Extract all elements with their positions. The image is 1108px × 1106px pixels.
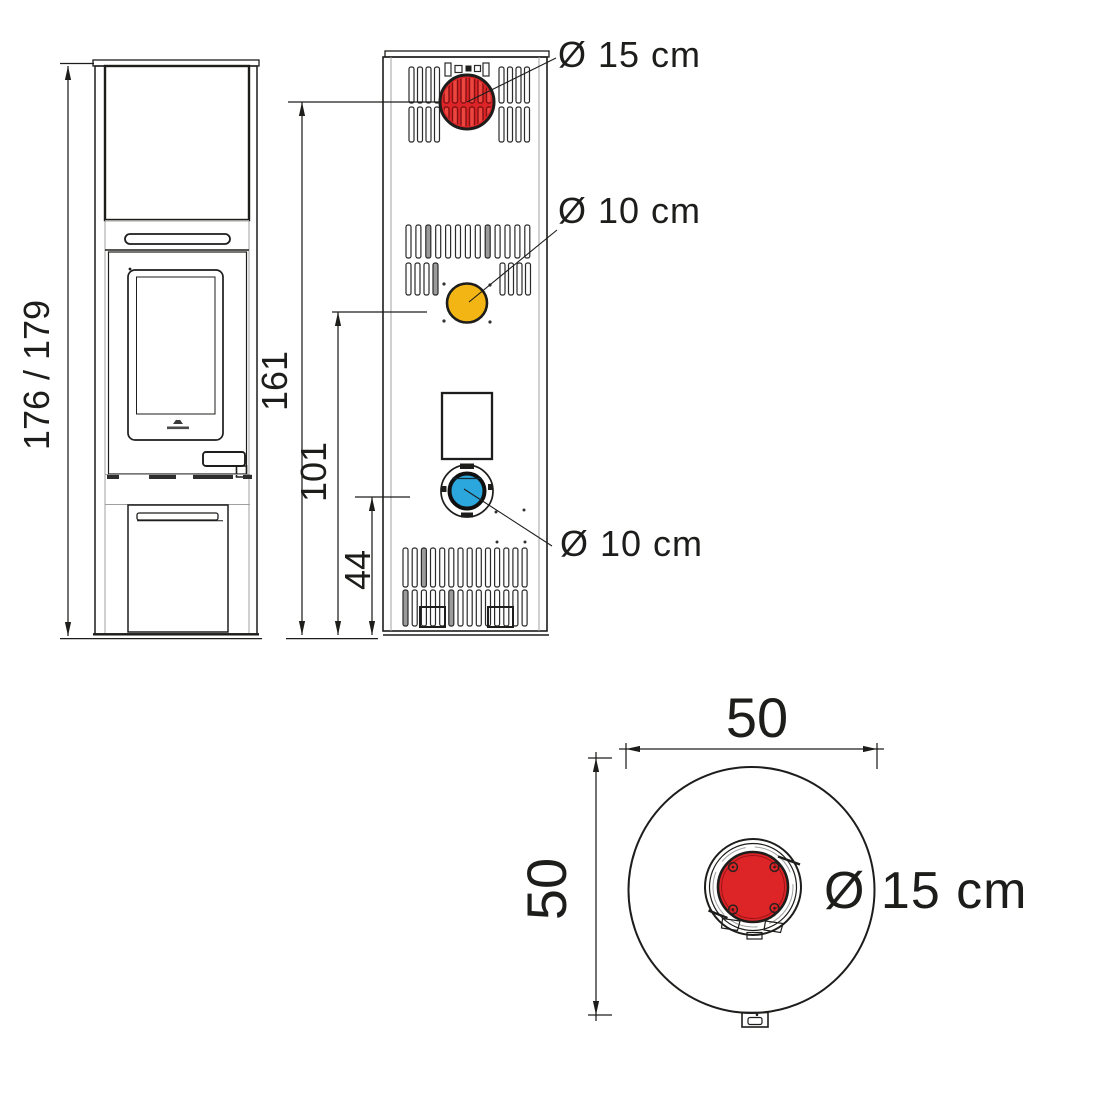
secondary-outlet-label: Ø 10 cm [558,190,701,231]
bracket-screw [756,1014,759,1017]
door-glass [137,277,216,414]
screw-hole [524,541,527,544]
secondary-outlet-circle [447,284,487,323]
brand-logo-icon [173,417,183,424]
arrowhead-down [65,622,71,636]
rear-top-cap [385,51,549,57]
dim-intake-height: 44 [337,497,410,635]
dim-top-width: 50 [619,686,884,769]
stove-body-front [95,66,257,634]
flue-collar-top [705,839,801,939]
intake-tab-top [460,464,474,470]
secondary-outlet-rear [442,282,491,323]
rear-bracket-slot [748,1018,762,1025]
rear-view [383,51,549,635]
dim-overall-height: 176 / 179 [16,64,94,637]
screw-hole [442,319,445,322]
screw-hole [496,541,499,544]
flue-outlet-rear [440,67,494,142]
storage-door-grip [137,513,218,520]
screw-hole [523,509,526,512]
rear-bottom-vents [403,548,527,627]
door-hinge-pin [129,268,132,271]
brand-logo-text [167,427,189,430]
dim-top-width-value: 50 [726,686,788,749]
door-handle [203,452,245,466]
rear-panel [383,57,547,631]
intake-tab-bottom [461,513,473,518]
upper-body-section [105,66,249,220]
dim-secondary-height-value: 101 [293,442,334,502]
screw-hole [442,282,445,285]
dim-top-depth-value: 50 [515,858,578,920]
door-sill-dashes [107,475,252,479]
top-view: 50 50 Ø 15 cm [515,686,1028,1027]
air-intake-rear [441,464,527,544]
air-intake-label: Ø 10 cm [560,523,703,564]
wood-storage-door [128,505,228,632]
dim-top-depth: 50 [515,752,612,1021]
flue-outlet-label: Ø 15 cm [558,34,701,75]
front-view [60,60,262,639]
air-control-slot [125,234,230,244]
dim-flue-height-value: 161 [254,351,295,411]
collar-clip-lower [709,911,728,919]
intake-lug-right [488,484,493,490]
rating-plate [442,393,492,459]
diagram-canvas: 176 / 179 [0,0,1108,1106]
arrowhead-up [65,66,71,80]
top-flue-diameter-label: Ø 15 cm [824,862,1028,920]
screw-hole [488,320,491,323]
intake-lug-left [442,486,447,492]
dim-intake-height-value: 44 [337,550,378,590]
dim-overall-height-value: 176 / 179 [16,300,57,450]
stove-dimension-diagram: 176 / 179 [0,0,1108,1106]
